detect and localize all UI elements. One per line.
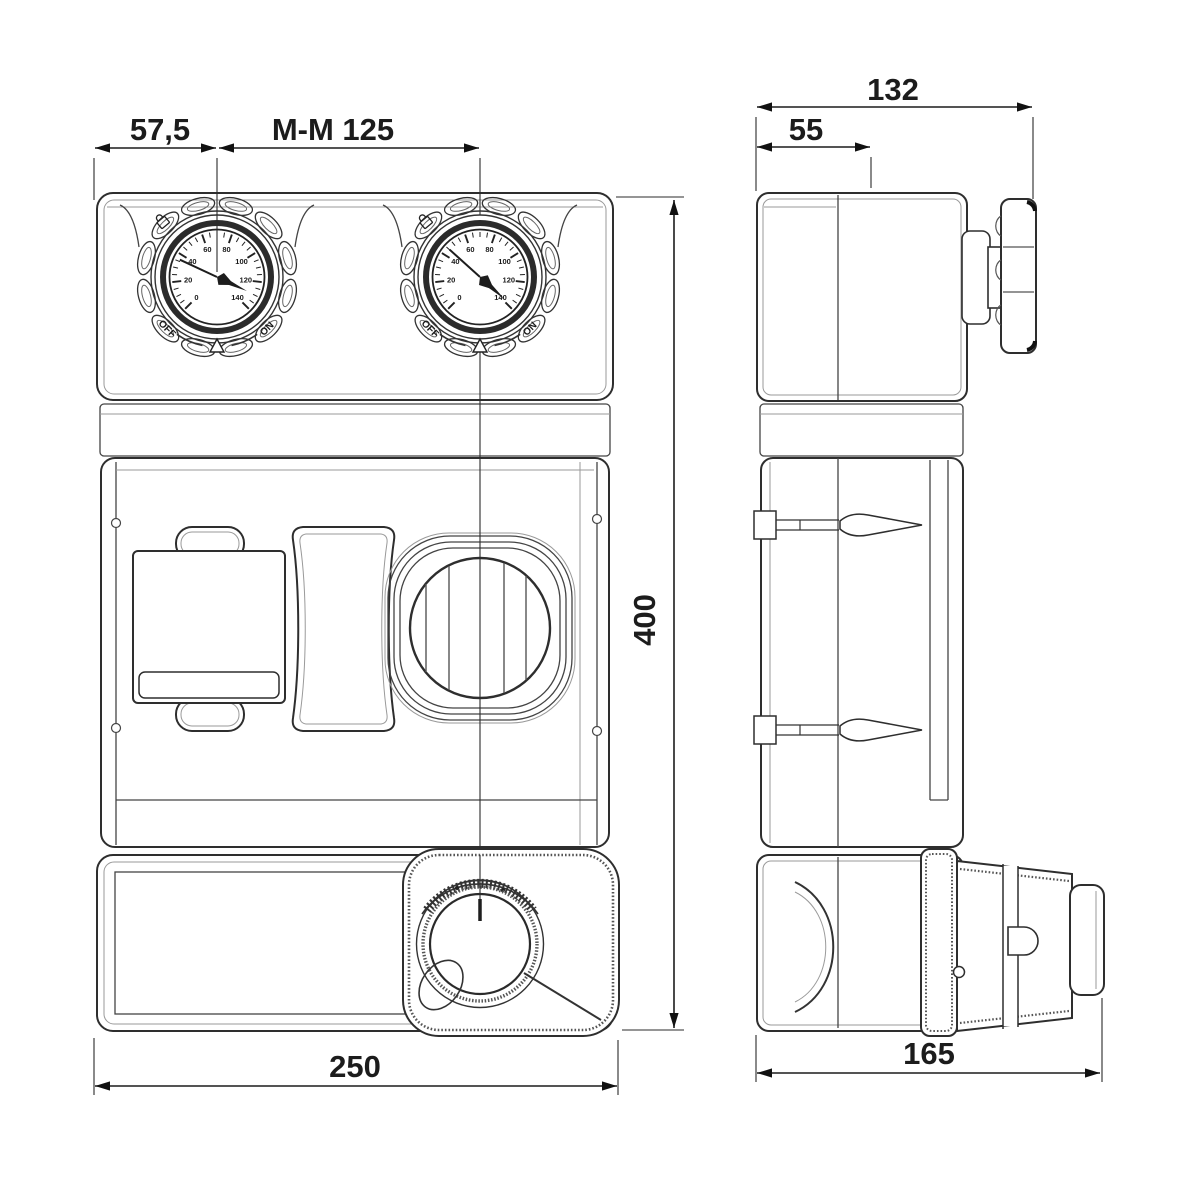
svg-text:120: 120 bbox=[240, 276, 253, 285]
svg-text:120: 120 bbox=[503, 276, 516, 285]
svg-text:140: 140 bbox=[231, 293, 244, 302]
svg-text:100: 100 bbox=[235, 257, 248, 266]
dim-height-label: 400 bbox=[627, 594, 662, 646]
svg-text:0: 0 bbox=[457, 293, 461, 302]
dim-port-spacing-label: M-M 125 bbox=[272, 112, 394, 147]
svg-text:80: 80 bbox=[222, 245, 230, 254]
side-view bbox=[754, 193, 1104, 1036]
valve-clamp bbox=[293, 527, 395, 731]
side-top-shell bbox=[757, 193, 967, 401]
dim-depth-side-label: 165 bbox=[903, 1036, 955, 1071]
svg-text:0: 0 bbox=[194, 293, 198, 302]
dim-width-front-label: 250 bbox=[329, 1049, 381, 1084]
valve-actuator-front bbox=[403, 849, 619, 1036]
dim-offset-label: 57,5 bbox=[130, 112, 190, 147]
actuator-side-latch bbox=[1008, 927, 1038, 955]
pump-module bbox=[133, 527, 285, 731]
svg-text:80: 80 bbox=[485, 245, 493, 254]
side-seam-band bbox=[760, 404, 963, 456]
svg-text:60: 60 bbox=[466, 245, 474, 254]
svg-text:20: 20 bbox=[447, 276, 455, 285]
dim-depth-partial-label: 55 bbox=[789, 112, 823, 147]
pump-group-drawing: 020406080100120140OFFON02040608010012014… bbox=[0, 0, 1200, 1200]
thermometer-knob-side bbox=[962, 199, 1036, 353]
technical-drawing-page: 020406080100120140OFFON02040608010012014… bbox=[0, 0, 1200, 1200]
valve-actuator-side bbox=[921, 849, 1104, 1036]
pump-label-plate bbox=[139, 672, 279, 698]
front-seam-band bbox=[100, 404, 610, 456]
svg-text:140: 140 bbox=[494, 293, 507, 302]
svg-text:100: 100 bbox=[498, 257, 511, 266]
actuator-side-cap bbox=[1070, 885, 1104, 995]
svg-text:20: 20 bbox=[184, 276, 192, 285]
svg-text:60: 60 bbox=[203, 245, 211, 254]
dim-depth-total-label: 132 bbox=[867, 72, 919, 107]
